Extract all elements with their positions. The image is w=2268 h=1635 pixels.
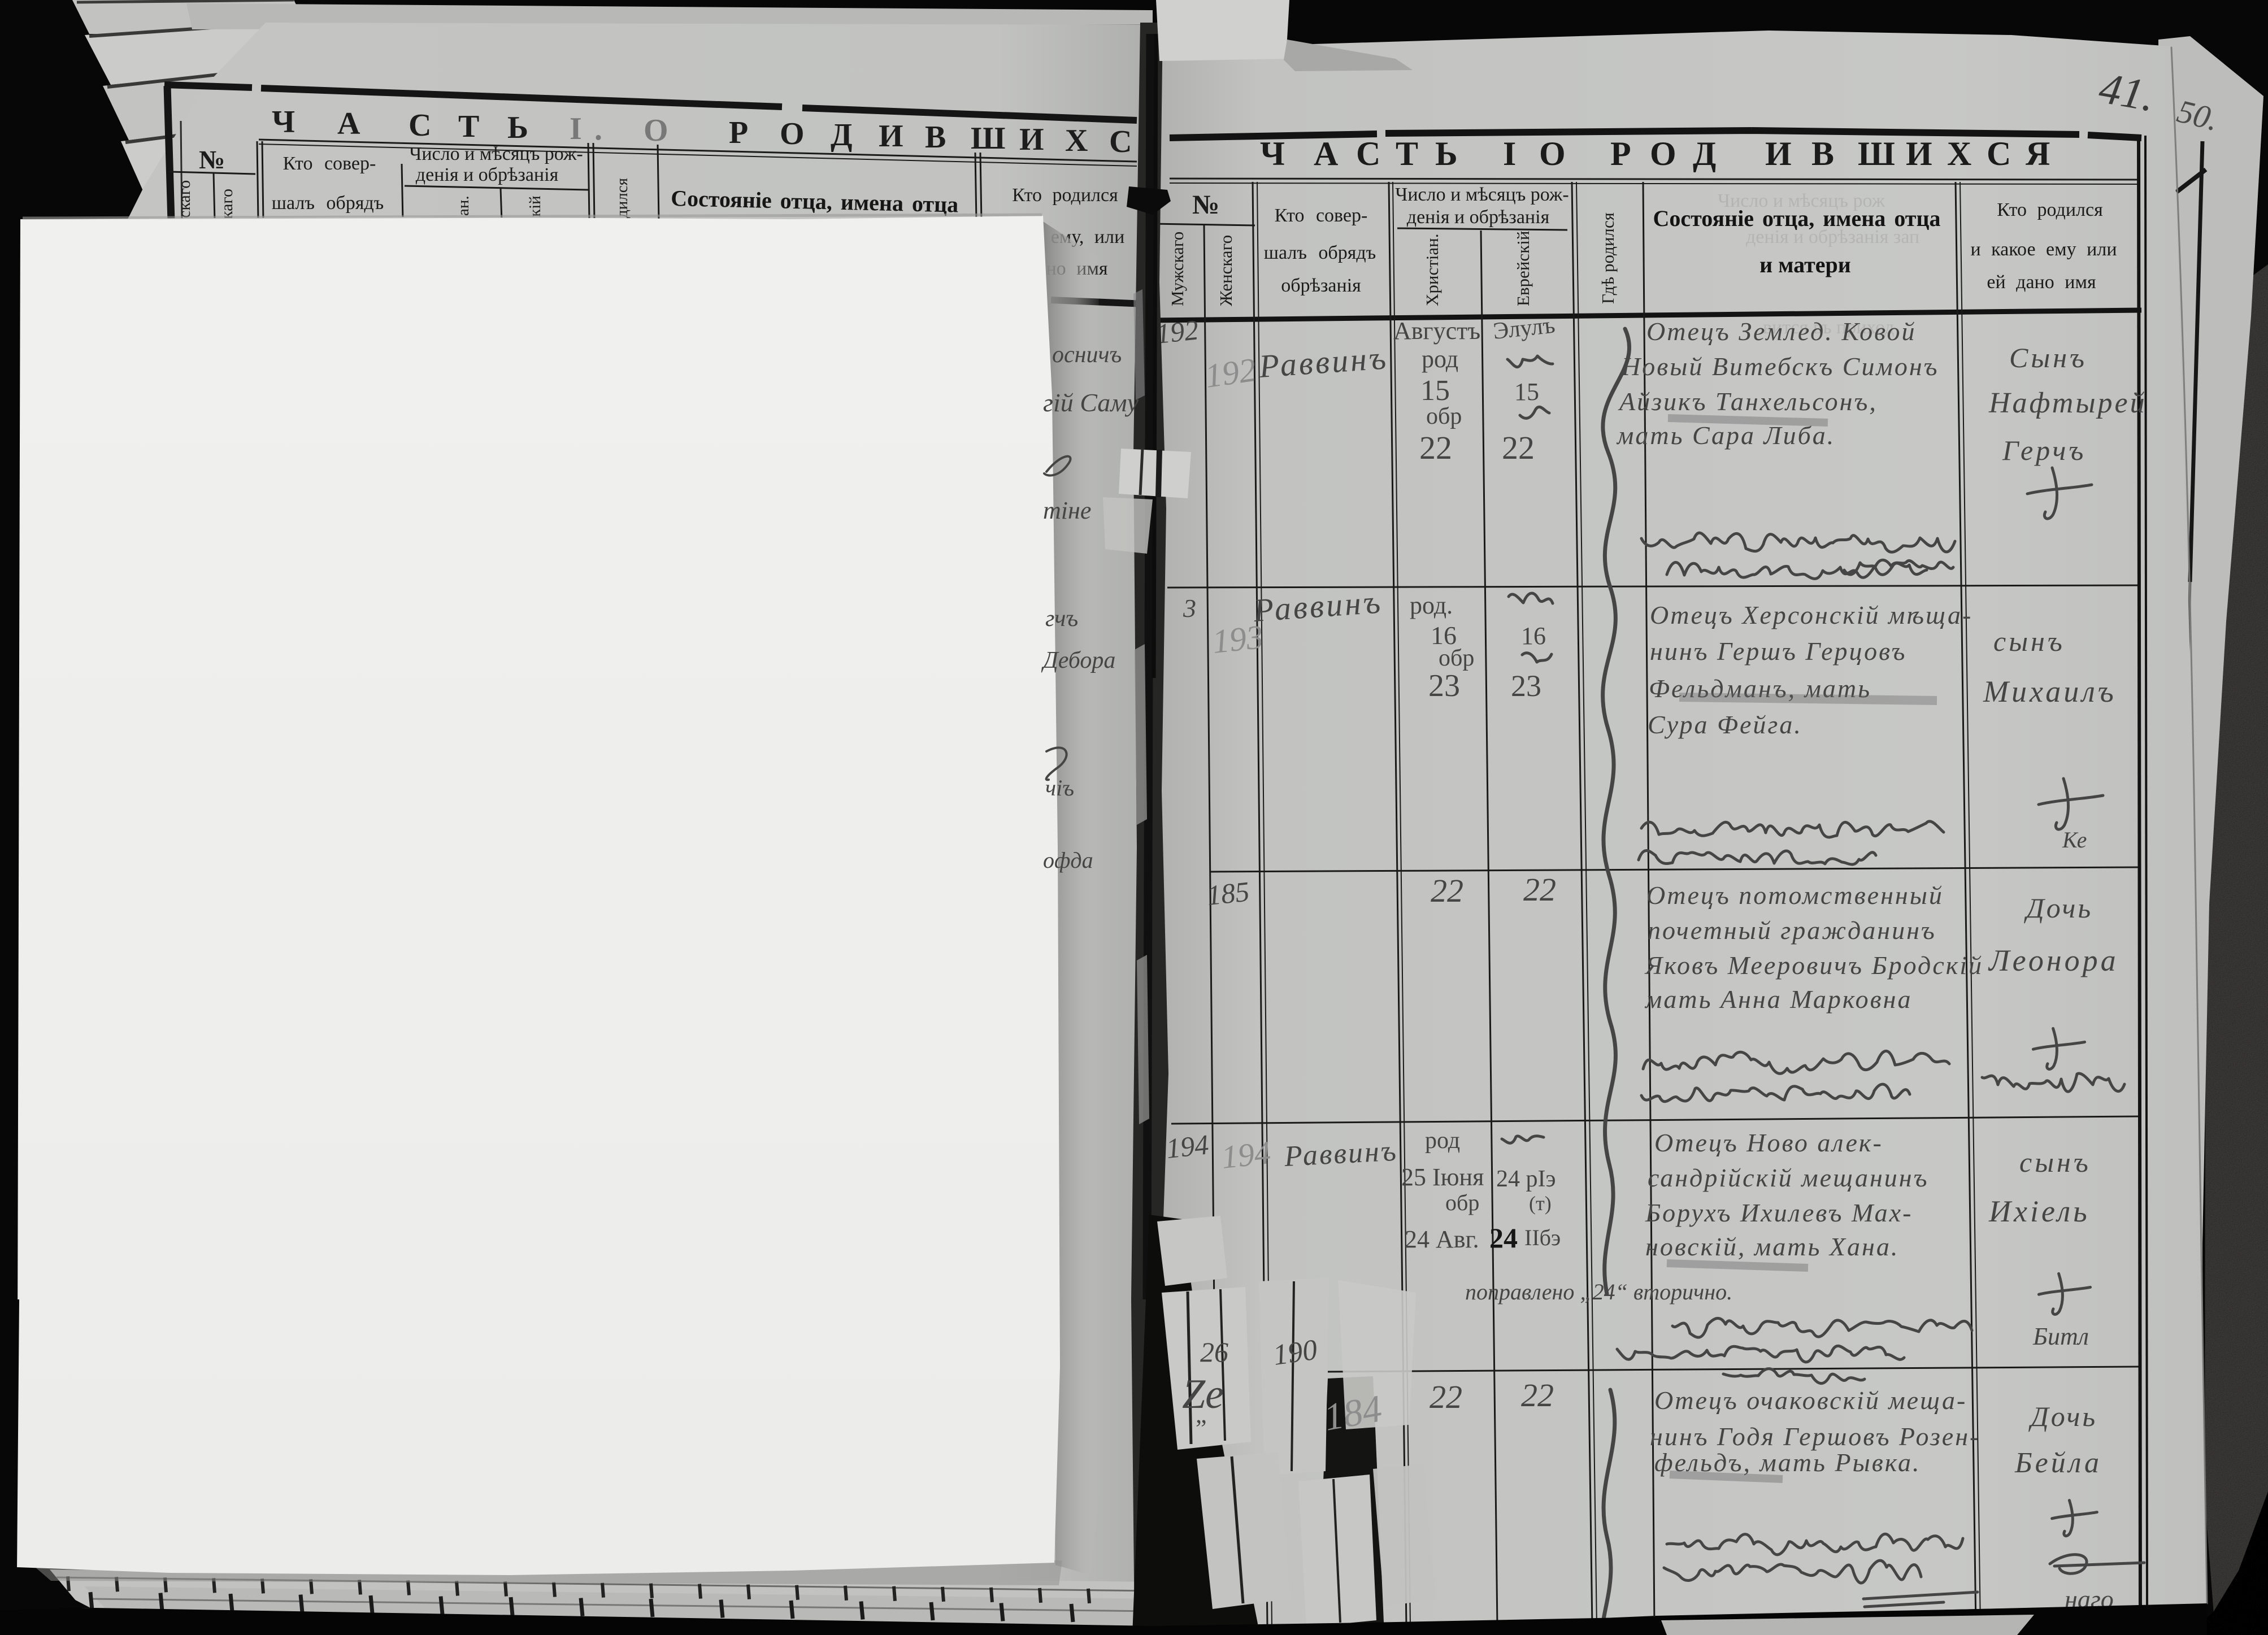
svg-text:денія и обрѣзанія: денія и обрѣзанія	[1407, 207, 1550, 228]
svg-text:23: 23	[1511, 669, 1541, 703]
svg-text:Нафтырей: Нафтырей	[1988, 387, 2147, 419]
svg-text:С: С	[1987, 135, 2011, 172]
svg-text:3: 3	[1183, 594, 1196, 623]
svg-text:Еврейскій: Еврейскій	[1513, 231, 1533, 306]
svg-text:род.: род.	[1410, 592, 1453, 619]
svg-text:сынъ: сынъ	[1993, 625, 2065, 657]
svg-text:поправлено „24“ вторично.: поправлено „24“ вторично.	[1465, 1279, 1732, 1304]
svg-text:22: 22	[1430, 1379, 1462, 1415]
svg-text:Гдѣ родился: Гдѣ родился	[1598, 212, 1618, 304]
svg-text:№: №	[199, 145, 225, 174]
svg-text:І: І	[1503, 135, 1516, 172]
svg-text:24: 24	[1489, 1222, 1518, 1254]
svg-text:Отецъ Ново алек-: Отецъ Ново алек-	[1654, 1128, 1883, 1157]
svg-text:С: С	[1109, 124, 1132, 159]
svg-text:190: 190	[1271, 1334, 1319, 1372]
svg-text:Новый Витебскъ Симонъ: Новый Витебскъ Симонъ	[1621, 352, 1939, 381]
svg-text:Бейла: Бейла	[2014, 1447, 2102, 1479]
svg-text:Х: Х	[1947, 135, 1971, 172]
svg-text:№: №	[1192, 190, 1219, 220]
svg-text:Герчъ: Герчъ	[2002, 434, 2086, 466]
svg-text:Число и мѣсяцъ рож-: Число и мѣсяцъ рож-	[1395, 184, 1569, 205]
svg-text:дился: дился	[613, 178, 631, 218]
svg-text:сынъ: сынъ	[2019, 1146, 2091, 1178]
svg-text:І: І	[570, 111, 582, 146]
svg-text:Ь: Ь	[507, 110, 528, 145]
svg-text:С: С	[1356, 135, 1380, 172]
svg-text:О: О	[1539, 135, 1566, 172]
svg-text:Христіан.: Христіан.	[1422, 234, 1442, 307]
svg-text:„: „	[1196, 1401, 1207, 1428]
svg-text:23: 23	[1428, 668, 1460, 703]
svg-text:Число и мѣсяцъ рож-: Число и мѣсяцъ рож-	[409, 144, 583, 164]
svg-text:24 рІэ: 24 рІэ	[1496, 1166, 1556, 1192]
svg-text:192: 192	[1154, 314, 1200, 350]
svg-text:шалъ обрядъ: шалъ обрядъ	[272, 193, 384, 214]
svg-text:Леонора: Леонора	[1988, 943, 2119, 977]
svg-text:скаго: скаго	[175, 180, 194, 218]
svg-text:Мужскаго: Мужскаго	[1167, 232, 1187, 306]
svg-text:Д: Д	[831, 118, 853, 153]
svg-text:А: А	[337, 106, 360, 141]
svg-text:О: О	[780, 116, 805, 151]
svg-text:Д: Д	[1693, 135, 1716, 172]
svg-text:род: род	[1422, 345, 1458, 373]
svg-text:Яковъ Мееровичъ Бродскій: Яковъ Мееровичъ Бродскій	[1644, 951, 1983, 980]
svg-text:ей дано имя: ей дано имя	[1987, 272, 2096, 293]
svg-text:Борухъ Ихилевъ Мах-: Борухъ Ихилевъ Мах-	[1645, 1198, 1913, 1227]
svg-text:денія и обрѣзанія: денія и обрѣзанія	[416, 164, 559, 185]
svg-text:194: 194	[1220, 1134, 1272, 1176]
svg-text:Т: Т	[1396, 135, 1418, 172]
svg-text:И: И	[1019, 122, 1044, 157]
svg-text:22: 22	[1523, 871, 1556, 908]
svg-text:Женскаго: Женскаго	[1216, 235, 1236, 306]
svg-text:25 Іюня: 25 Іюня	[1401, 1163, 1484, 1191]
svg-text:185: 185	[1205, 875, 1250, 911]
svg-text:Кто родился: Кто родился	[1012, 185, 1118, 206]
svg-text:сандрійскій мещанинъ: сандрійскій мещанинъ	[1648, 1163, 1928, 1192]
svg-text:Отецъ Землед. Ковой: Отецъ Землед. Ковой	[1646, 317, 1917, 346]
svg-text:Т: Т	[458, 109, 479, 144]
svg-text:Раввинъ: Раввинъ	[1283, 1135, 1398, 1173]
svg-text:15: 15	[1420, 375, 1450, 407]
svg-text:И: И	[1906, 135, 1932, 172]
svg-text:кій: кій	[526, 195, 544, 217]
svg-text:ан.: ан.	[454, 195, 472, 216]
svg-text:Дочь: Дочь	[2028, 1401, 2097, 1432]
svg-text:офда: офда	[1043, 847, 1093, 873]
svg-text:22: 22	[1521, 1377, 1554, 1414]
svg-text:род: род	[1425, 1128, 1460, 1154]
svg-text:С: С	[409, 108, 431, 143]
svg-text:41.: 41.	[2096, 63, 2158, 121]
svg-text:чіъ: чіъ	[1045, 775, 1074, 801]
svg-text:гій Саму: гій Саму	[1043, 388, 1139, 417]
svg-text:Сынъ: Сынъ	[2009, 342, 2087, 373]
svg-text:Отецъ Херсонскій мѣща-: Отецъ Херсонскій мѣща-	[1650, 601, 1972, 629]
svg-text:нинъ Гершъ Герцовъ: нинъ Гершъ Герцовъ	[1650, 637, 1906, 666]
svg-text:194: 194	[1165, 1128, 1210, 1164]
svg-text:Кто совер-: Кто совер-	[283, 153, 376, 174]
svg-text:Дочь: Дочь	[2024, 892, 2093, 924]
svg-text:16: 16	[1521, 622, 1546, 650]
svg-text:Кто совер-: Кто совер-	[1275, 205, 1368, 226]
svg-text:обр: обр	[1426, 403, 1462, 429]
svg-text:обр: обр	[1439, 645, 1474, 671]
svg-text:Состояніе отца, имена отца: Состояніе отца, имена отца	[1653, 206, 1941, 231]
svg-text:Отецъ очаковскій меща-: Отецъ очаковскій меща-	[1654, 1386, 1967, 1415]
svg-text:И: И	[1765, 135, 1792, 172]
svg-text:И: И	[879, 119, 903, 154]
svg-text:О: О	[1650, 135, 1676, 172]
svg-text:(т): (т)	[1529, 1192, 1552, 1215]
svg-text:Дебора: Дебора	[1041, 647, 1115, 673]
svg-text:каго: каго	[218, 189, 236, 219]
svg-text:и матери: и матери	[1759, 252, 1851, 277]
svg-text:Сура Фейга.: Сура Фейга.	[1648, 710, 1802, 739]
svg-text:обр: обр	[1445, 1190, 1479, 1215]
svg-text:22: 22	[1419, 429, 1452, 466]
svg-text:Отецъ потомственный: Отецъ потомственный	[1646, 881, 1944, 910]
svg-text:Ч: Ч	[272, 105, 295, 140]
svg-text:В: В	[1811, 135, 1834, 172]
svg-text:.: .	[594, 112, 602, 147]
svg-text:новскій, мать Хана.: новскій, мать Хана.	[1645, 1232, 1899, 1261]
svg-text:Августъ: Августъ	[1393, 317, 1480, 345]
svg-text:Ь: Ь	[1435, 135, 1458, 172]
svg-text:О: О	[644, 113, 668, 148]
svg-text:Р: Р	[1610, 135, 1631, 172]
svg-text:А: А	[1314, 135, 1338, 172]
svg-text:гчъ: гчъ	[1045, 606, 1078, 632]
svg-text:Р: Р	[729, 115, 748, 150]
svg-text:Ш: Ш	[971, 121, 1006, 156]
svg-text:и какое ему или: и какое ему или	[1970, 239, 2117, 260]
svg-text:Айзикъ Танхельсонъ,: Айзикъ Танхельсонъ,	[1618, 387, 1878, 416]
svg-text:Я: Я	[2026, 135, 2050, 172]
svg-text:Ш: Ш	[1858, 135, 1895, 172]
svg-text:22: 22	[1502, 429, 1535, 466]
svg-text:шалъ обрядъ: шалъ обрядъ	[1264, 242, 1376, 263]
svg-text:Ке: Ке	[2062, 827, 2087, 853]
svg-text:Битл: Битл	[2032, 1323, 2089, 1350]
svg-text:Ихіель: Ихіель	[1988, 1194, 2090, 1228]
svg-text:Михаилъ: Михаилъ	[1983, 675, 2117, 708]
svg-text:24 Авг.: 24 Авг.	[1405, 1225, 1479, 1253]
svg-text:В: В	[925, 120, 946, 155]
svg-text:тіне: тіне	[1043, 497, 1091, 524]
svg-text:Кто родился: Кто родился	[1997, 199, 2103, 220]
svg-text:22: 22	[1431, 872, 1463, 909]
svg-text:ІІбэ: ІІбэ	[1524, 1225, 1561, 1250]
svg-text:мать Анна Марковна: мать Анна Марковна	[1644, 985, 1912, 1014]
svg-text:почетный гражданинъ: почетный гражданинъ	[1648, 916, 1936, 945]
svg-text:Х: Х	[1065, 123, 1088, 158]
svg-text:15: 15	[1514, 378, 1539, 406]
svg-text:26: 26	[1200, 1336, 1228, 1368]
svg-text:192: 192	[1203, 351, 1258, 395]
svg-text:осничъ: осничъ	[1052, 342, 1122, 368]
svg-text:нинъ Годя Гершовъ Розен-: нинъ Годя Гершовъ Розен-	[1650, 1422, 1980, 1451]
svg-text:Ч: Ч	[1260, 135, 1285, 172]
svg-text:обрѣзанія: обрѣзанія	[1281, 275, 1361, 296]
